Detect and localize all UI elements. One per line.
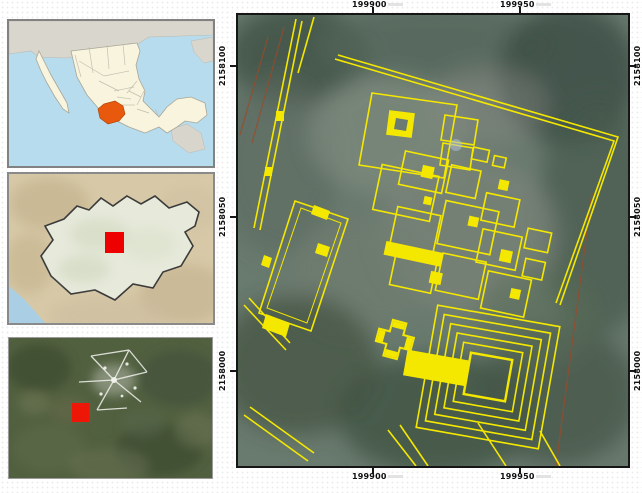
- grid-label-right-north: 2158100: [633, 40, 642, 92]
- grid-tick-left-mid: [230, 216, 236, 218]
- grid-label-right-south: 2158000: [633, 345, 642, 397]
- grid-label-bottom-west: 199900: [352, 472, 387, 481]
- grid-label-left-north: 2158100: [218, 40, 227, 92]
- main-site-map: [236, 13, 630, 468]
- satellite-inset-graphic: [9, 338, 212, 478]
- grid-label-smudge: [388, 475, 403, 478]
- grid-label-smudge: [536, 475, 551, 478]
- site-location-marker-satellite: [72, 403, 89, 422]
- site-map-graphic: [238, 15, 628, 466]
- state-map-graphic: [9, 174, 213, 323]
- grid-label-smudge: [388, 3, 403, 6]
- grid-label-left-south: 2158000: [218, 345, 227, 397]
- grid-label-top-east: 199950: [500, 0, 535, 9]
- mexico-map-graphic: [9, 21, 213, 166]
- grid-label-left-mid: 2158050: [218, 191, 227, 243]
- inset-michoacan-state-map: [7, 172, 215, 325]
- grid-tick-left-north: [230, 65, 236, 67]
- grid-label-bottom-east: 199950: [500, 472, 535, 481]
- grid-tick-left-south: [230, 370, 236, 372]
- site-location-marker: [105, 232, 124, 253]
- grid-label-right-mid: 2158050: [633, 191, 642, 243]
- inset-mexico-country-map: [7, 19, 215, 168]
- inset-regional-satellite: [8, 337, 213, 479]
- grid-label-smudge: [536, 3, 551, 6]
- grid-label-top-west: 199900: [352, 0, 387, 9]
